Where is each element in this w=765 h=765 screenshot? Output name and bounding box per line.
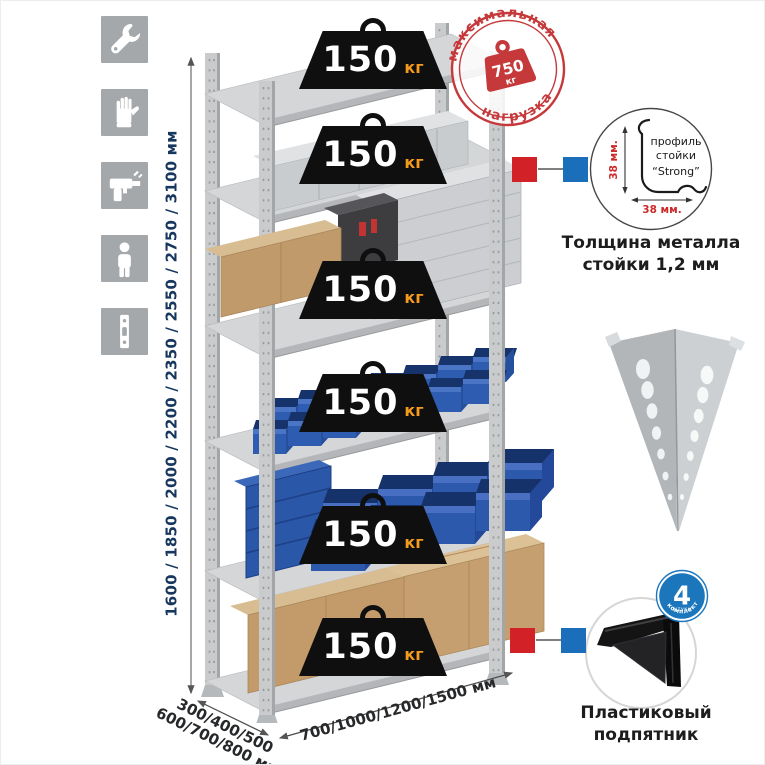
weight-icon: 150 кг bbox=[299, 506, 447, 564]
drill-glyph bbox=[101, 162, 148, 209]
weight-icon: 150 кг bbox=[299, 261, 447, 319]
foot-caption-line1: Пластиковый bbox=[566, 702, 726, 724]
load-badge-4: 150 кг bbox=[299, 374, 447, 432]
height-dimensions-label: 1600 / 1850 / 2000 / 2200 / 2350 / 2550 … bbox=[163, 124, 180, 624]
load-badge-2: 150 кг bbox=[299, 126, 447, 184]
profile-label-3: “Strong” bbox=[652, 165, 700, 178]
person-glyph bbox=[101, 235, 148, 282]
foot-marker-blue bbox=[561, 628, 586, 653]
load-badge-3: 150 кг bbox=[299, 261, 447, 319]
rack-post-icon bbox=[101, 308, 148, 355]
wrench-icon bbox=[101, 16, 148, 63]
load-value: 150 bbox=[322, 270, 398, 310]
rack-post-glyph bbox=[101, 308, 148, 355]
load-badge-1: 150 кг bbox=[299, 31, 447, 89]
drill-icon bbox=[101, 162, 148, 209]
person-icon bbox=[101, 235, 148, 282]
profile-dim-horizontal: 38 мм. bbox=[642, 204, 681, 216]
gloves-icon bbox=[101, 89, 148, 136]
load-badge-6: 150 кг bbox=[299, 618, 447, 676]
load-value: 150 bbox=[322, 627, 398, 667]
load-unit: кг bbox=[404, 288, 423, 307]
load-value: 150 bbox=[322, 383, 398, 423]
angle-post-image bbox=[599, 299, 749, 537]
load-value: 150 bbox=[322, 40, 398, 80]
load-unit: кг bbox=[404, 401, 423, 420]
profile-marker-blue bbox=[563, 157, 588, 182]
wrench-glyph bbox=[101, 16, 148, 63]
gloves-glyph bbox=[101, 89, 148, 136]
product-infographic: 1600 / 1850 / 2000 / 2200 / 2350 / 2550 … bbox=[0, 0, 765, 765]
thickness-caption-line2: стойки 1,2 мм bbox=[561, 254, 741, 276]
profile-label-1: профиль bbox=[651, 135, 702, 148]
weight-icon: 150 кг bbox=[299, 126, 447, 184]
load-unit: кг bbox=[404, 58, 423, 77]
load-unit: кг bbox=[404, 153, 423, 172]
load-value: 150 bbox=[322, 515, 398, 555]
load-unit: кг bbox=[404, 645, 423, 664]
foot-caption: Пластиковый подпятник bbox=[566, 702, 726, 746]
weight-icon: 150 кг bbox=[299, 374, 447, 432]
max-load-stamp: максимальная нагрузка 750 кг bbox=[446, 7, 570, 131]
profile-detail-circle: 38 мм. 38 мм. профиль стойки “Strong” bbox=[587, 105, 715, 233]
weight-icon: 150 кг bbox=[299, 31, 447, 89]
load-unit: кг bbox=[404, 533, 423, 552]
foot-caption-line2: подпятник bbox=[566, 724, 726, 746]
included-count-badge: 4 штуки в комплекте bbox=[655, 569, 709, 623]
profile-marker-red bbox=[512, 157, 537, 182]
foot-marker-red bbox=[510, 628, 535, 653]
load-badge-5: 150 кг bbox=[299, 506, 447, 564]
profile-dim-vertical: 38 мм. bbox=[608, 140, 620, 179]
thickness-caption-line1: Толщина металла bbox=[561, 232, 741, 254]
thickness-caption: Толщина металла стойки 1,2 мм bbox=[561, 232, 741, 276]
load-value: 150 bbox=[322, 135, 398, 175]
profile-label-2: стойки bbox=[656, 149, 696, 162]
back-left-post bbox=[201, 53, 224, 697]
weight-icon: 150 кг bbox=[299, 618, 447, 676]
